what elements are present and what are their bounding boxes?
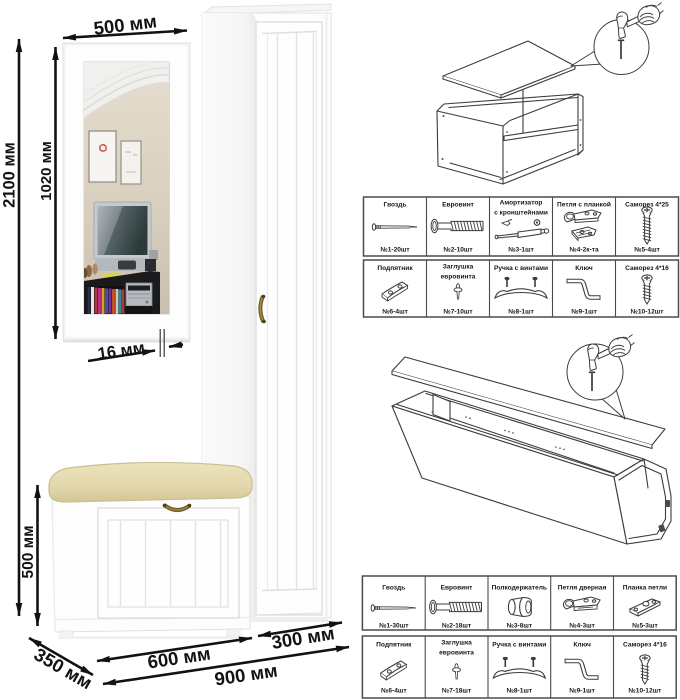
svg-text:Подпятник: Подпятник xyxy=(377,265,413,272)
svg-text:№5-4шт: №5-4шт xyxy=(634,247,660,254)
svg-text:Ручка с винтами: Ручка с винтами xyxy=(494,265,548,272)
svg-text:№6-4шт: №6-4шт xyxy=(381,688,407,695)
svg-text:№10-12шт: №10-12шт xyxy=(631,309,665,316)
svg-text:Ключ: Ключ xyxy=(573,642,591,649)
svg-text:№3-1шт: №3-1шт xyxy=(508,247,534,254)
svg-text:Полкодержатель: Полкодержатель xyxy=(492,585,547,592)
svg-text:евровинта: евровинта xyxy=(439,650,474,657)
svg-text:с кронштейнами: с кронштейнами xyxy=(494,209,548,217)
svg-text:евровинта: евровинта xyxy=(441,274,476,281)
svg-text:№10-12шт: №10-12шт xyxy=(628,688,662,695)
svg-text:Планка петли: Планка петли xyxy=(623,585,667,592)
svg-text:Саморез 4*16: Саморез 4*16 xyxy=(625,265,669,272)
svg-text:Саморез 4*16: Саморез 4*16 xyxy=(623,642,667,649)
svg-text:Ключ: Ключ xyxy=(575,265,593,272)
svg-text:Петля дверная: Петля дверная xyxy=(558,585,607,592)
svg-text:Подпятник: Подпятник xyxy=(376,642,412,649)
svg-text:№3-8шт: №3-8шт xyxy=(506,623,532,630)
svg-text:Амортизатор: Амортизатор xyxy=(500,200,543,207)
svg-text:№2-10шт: №2-10шт xyxy=(443,247,473,254)
svg-text:Заглушка: Заглушка xyxy=(441,640,472,647)
svg-text:№6-4шт: №6-4шт xyxy=(382,309,408,316)
svg-text:2100 мм: 2100 мм xyxy=(1,142,19,208)
svg-text:Заглушка: Заглушка xyxy=(443,264,474,271)
svg-text:Гвоздь: Гвоздь xyxy=(382,585,405,592)
svg-text:№1-20шт: №1-20шт xyxy=(380,247,410,254)
svg-text:1020 мм: 1020 мм xyxy=(38,141,55,201)
svg-text:№4-2к-та: №4-2к-та xyxy=(569,247,599,254)
svg-text:500 мм: 500 мм xyxy=(20,525,37,578)
svg-text:№9-1шт: №9-1шт xyxy=(571,309,597,316)
svg-text:Гвоздь: Гвоздь xyxy=(384,202,407,209)
svg-text:№5-3шт: №5-3шт xyxy=(632,623,658,630)
svg-text:№7-18шт: №7-18шт xyxy=(442,688,472,695)
svg-text:Петля с планкой: Петля с планкой xyxy=(557,201,611,209)
svg-text:№9-1шт: №9-1шт xyxy=(569,688,595,695)
svg-text:№4-3шт: №4-3шт xyxy=(569,623,595,630)
svg-text:Евровинт: Евровинт xyxy=(442,202,475,209)
svg-text:№2-18шт: №2-18шт xyxy=(442,623,472,630)
svg-text:Ручка с винтами: Ручка с винтами xyxy=(492,642,546,649)
svg-text:№8-1шт: №8-1шт xyxy=(508,309,534,316)
svg-text:№1-30шт: №1-30шт xyxy=(379,623,409,630)
svg-text:Евровинт: Евровинт xyxy=(441,585,474,592)
svg-text:№7-10шт: №7-10шт xyxy=(443,309,473,316)
svg-text:№8-1шт: №8-1шт xyxy=(506,688,532,695)
